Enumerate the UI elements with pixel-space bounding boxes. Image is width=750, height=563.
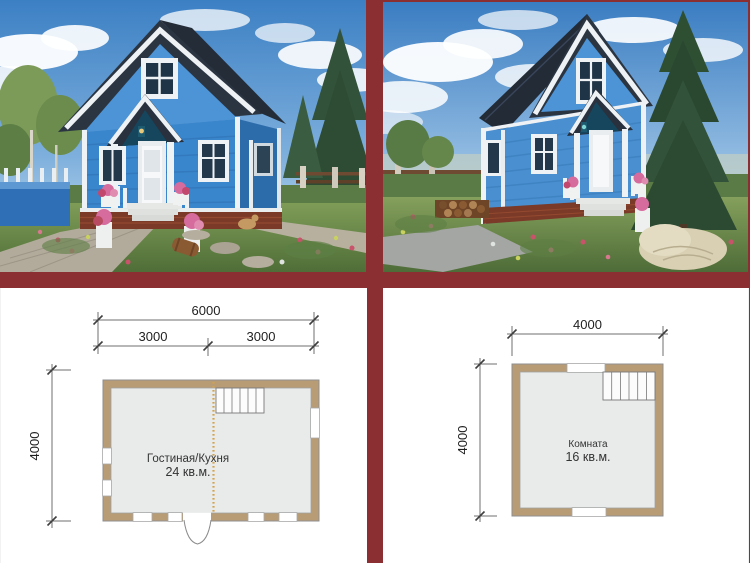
window-right [198,140,229,182]
window-left [99,146,126,185]
downpipe [249,140,253,210]
porch-post-right [622,129,628,197]
floor-plan-first-drawing: 6000 3000 3000 4000 Гостиная/Кух [1,288,367,563]
downpipe [501,130,505,216]
room-name-label: Гостиная/Кухня [147,453,229,465]
window-left [531,134,557,174]
room-area-label: 24 кв.м. [165,465,210,479]
house-photo-side [383,2,748,272]
gable-window [141,58,178,99]
window-far-left [485,140,502,176]
dim-left-half: 3000 [139,329,168,344]
steps [124,203,182,221]
window-side [254,143,273,176]
house-project-board: 6000 3000 3000 4000 Гостиная/Кух [0,0,750,563]
house-photo-front-scene [0,0,366,272]
woodpile [435,200,489,218]
floor-plan-first-floor: 6000 3000 3000 4000 Гостиная/Кух [0,288,367,563]
stairs-symbol [603,372,655,400]
dim-width: 4000 [573,317,602,332]
door-swing-arc [184,520,211,544]
floor-plan-second-floor: 4000 4000 Комната 16 кв.м. [383,288,749,563]
dim-depth: 4000 [455,426,470,455]
room-name-label: Комната [568,439,608,450]
house-photo-side-scene [383,2,748,272]
stairs-symbol [216,388,264,413]
dim-depth: 4000 [27,432,42,461]
room-area-label: 16 кв.м. [565,450,610,464]
room-floor [111,388,311,513]
dim-right-half: 3000 [247,329,276,344]
steps [576,198,630,216]
front-door [589,130,613,192]
porch-post-right [167,142,174,208]
house-photo-front [0,0,366,272]
floor-plan-second-drawing: 4000 4000 Комната 16 кв.м. [383,288,748,563]
dim-total-width: 6000 [192,303,221,318]
front-door [138,141,166,208]
